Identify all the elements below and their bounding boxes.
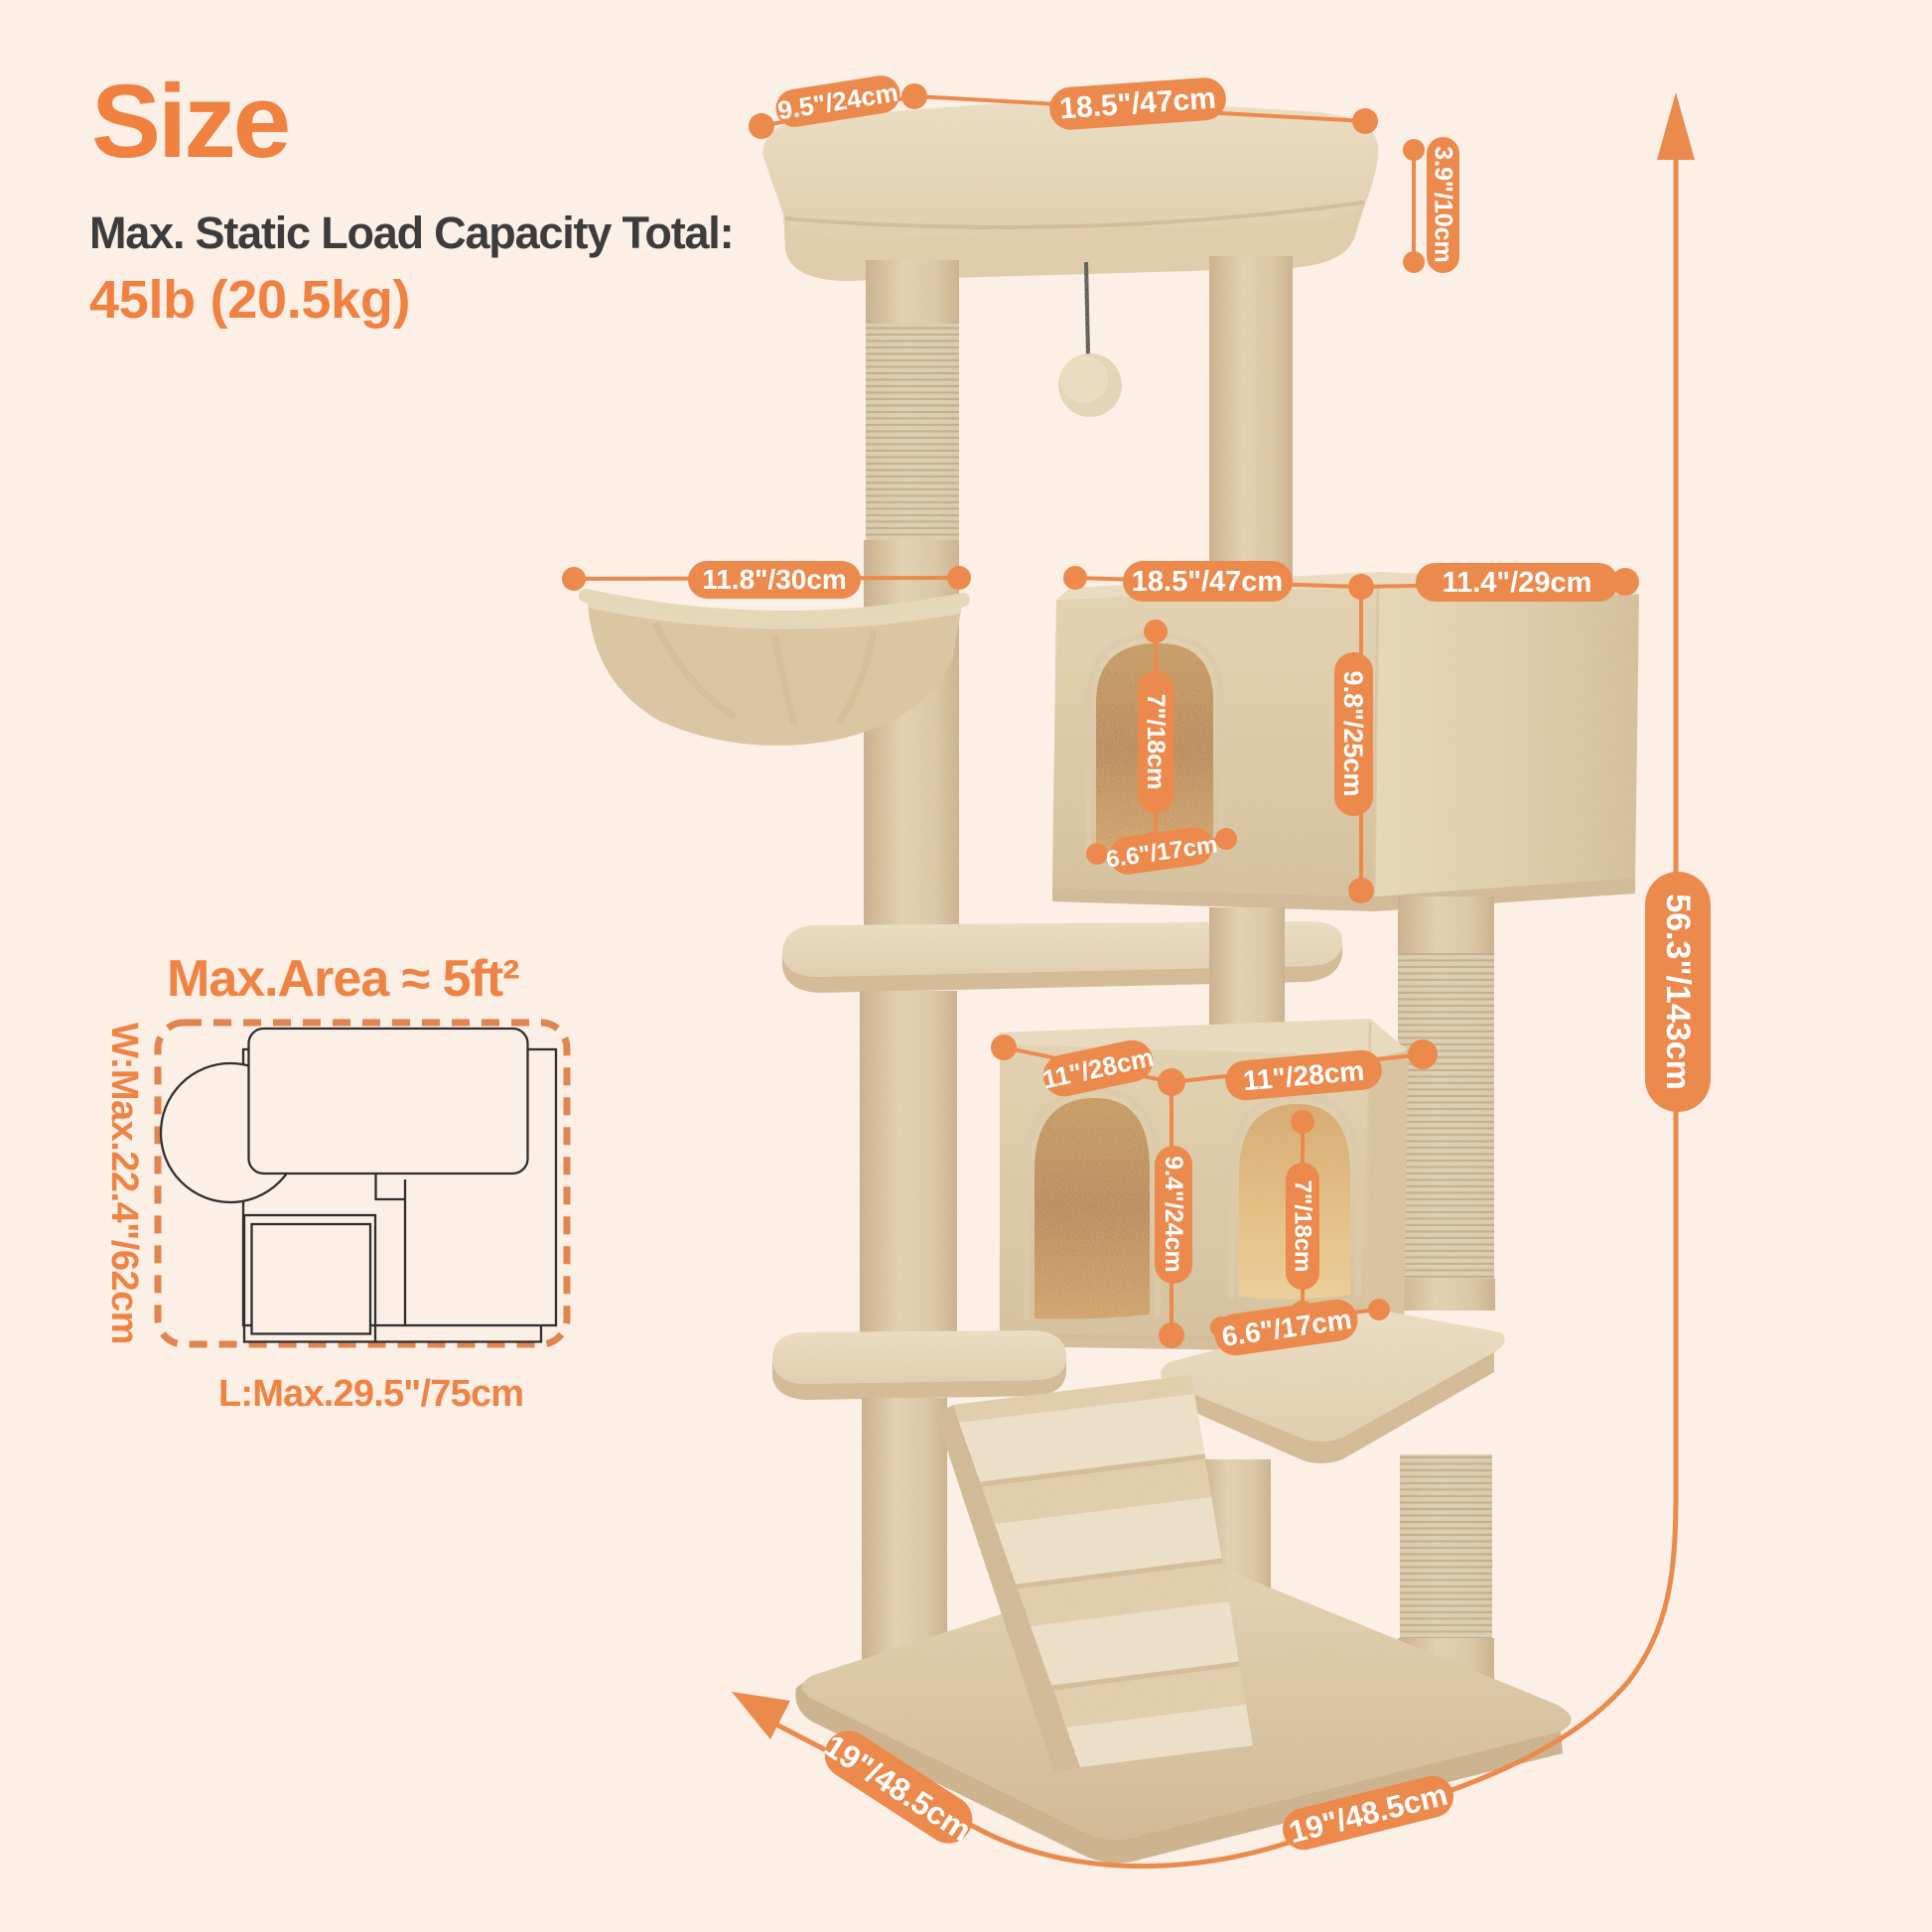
svg-text:Size: Size — [91, 64, 288, 180]
svg-text:11.8"/30cm: 11.8"/30cm — [702, 564, 847, 595]
svg-text:3.9"/10cm: 3.9"/10cm — [1430, 146, 1457, 263]
svg-text:9.4"/24cm: 9.4"/24cm — [1160, 1156, 1187, 1273]
svg-text:Max. Static Load Capacity Tota: Max. Static Load Capacity Total: — [89, 207, 733, 258]
svg-text:W:Max.22.4"/62cm: W:Max.22.4"/62cm — [103, 1023, 145, 1344]
svg-text:11.4"/29cm: 11.4"/29cm — [1443, 567, 1592, 599]
svg-text:Max.Area ≈ 5ft²: Max.Area ≈ 5ft² — [167, 950, 519, 1008]
svg-text:L:Max.29.5"/75cm: L:Max.29.5"/75cm — [218, 1373, 523, 1415]
svg-text:7"/18cm: 7"/18cm — [1290, 1180, 1316, 1273]
svg-text:56.3"/143cm: 56.3"/143cm — [1659, 894, 1697, 1090]
svg-text:9.8"/25cm: 9.8"/25cm — [1338, 671, 1368, 797]
svg-text:7"/18cm: 7"/18cm — [1142, 694, 1170, 790]
svg-text:45lb (20.5kg): 45lb (20.5kg) — [89, 270, 410, 330]
svg-text:18.5"/47cm: 18.5"/47cm — [1132, 566, 1283, 598]
